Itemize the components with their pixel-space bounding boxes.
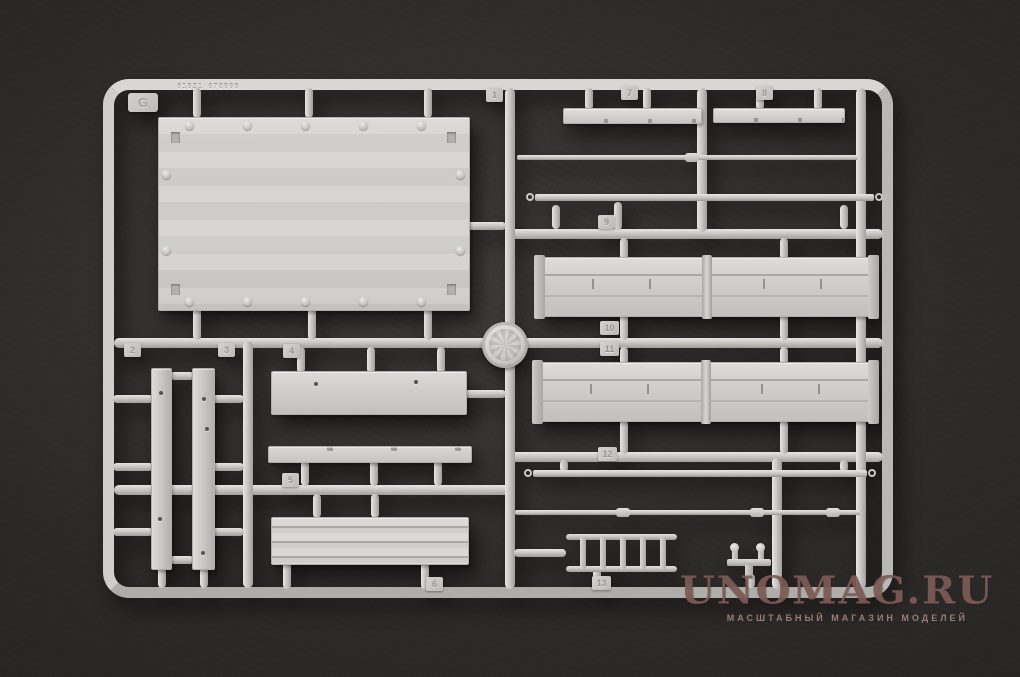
hole-detail [159, 391, 163, 395]
sprue-gate [193, 308, 201, 340]
hole-detail [202, 397, 206, 401]
sprue-gate [466, 222, 506, 230]
ladder-rung [600, 537, 606, 569]
watermark-title: UNOMAG.RU [680, 572, 970, 610]
sprue-gate [840, 205, 848, 229]
part-narrow-strip [268, 446, 472, 463]
corner-notch [447, 284, 456, 295]
rivet-detail [185, 297, 194, 306]
part-number-tag-1: 1 [486, 88, 503, 102]
rod-joint [826, 508, 840, 517]
ladder-rung [640, 537, 646, 569]
bracket-ball-head [730, 543, 739, 552]
part-number-tag-2: 2 [124, 343, 141, 357]
sprue-gate [434, 460, 442, 486]
part-step-strip-b [713, 108, 845, 123]
sprue-gate [305, 88, 313, 118]
rivet-detail [243, 121, 252, 130]
sprue-gate [212, 395, 244, 403]
rivet-detail [162, 246, 171, 255]
part-number-tag-3: 3 [218, 343, 235, 357]
part-step-strip-a [563, 108, 702, 124]
runner-vertical [243, 341, 253, 588]
part-bed-side-panel-a [536, 257, 877, 317]
watermark-subtitle: МАСШТАБНЫЙ МАГАЗИН МОДЕЛЕЙ [660, 613, 968, 623]
part-number-tag-9: 9 [598, 215, 615, 229]
hole-detail [201, 551, 205, 555]
sprue-gate [424, 308, 432, 340]
sprue-gate [814, 88, 822, 110]
sprue-gate [370, 460, 378, 486]
sprue-gate [212, 463, 244, 471]
rod-joint [685, 153, 699, 162]
eyelet-ring [526, 193, 534, 201]
sprue-gate [464, 390, 506, 398]
hole-detail [205, 427, 209, 431]
sprue-gate [552, 205, 560, 229]
ladder-rung [620, 537, 626, 569]
rod-joint [750, 508, 764, 517]
rivet-detail [185, 121, 194, 130]
sprue-gate [113, 463, 153, 471]
part-long-rod [517, 155, 858, 160]
part-number-tag-7: 7 [621, 86, 638, 100]
part-tie-bar-upper [535, 194, 874, 201]
sprue-gate [780, 314, 788, 340]
rivet-detail [359, 297, 368, 306]
rivet-detail [417, 121, 426, 130]
rivet-detail [301, 297, 310, 306]
sprue-gate [113, 395, 153, 403]
sprue-gate [313, 494, 321, 518]
eyelet-ring [875, 193, 883, 201]
runner-horizontal [509, 229, 883, 239]
panel-center-seam [702, 255, 712, 319]
sprue-gate [193, 88, 201, 118]
sprue-gate [424, 88, 432, 118]
part-tarp-roof-panel [158, 117, 470, 311]
sprue-gate [585, 88, 593, 110]
part-flat-board [271, 371, 467, 415]
part-number-tag-12: 12 [598, 447, 617, 461]
part-number-tag-6: 6 [426, 577, 443, 591]
sprue-gate [780, 420, 788, 454]
rivet-detail [162, 170, 171, 179]
corner-notch [447, 132, 456, 143]
rivet-detail [301, 121, 310, 130]
sprue-gate [371, 494, 379, 518]
mold-logo-medallion [482, 322, 528, 368]
eyelet-ring [868, 469, 876, 477]
part-number-tag-4: 4 [283, 344, 300, 358]
sprue-gate [614, 202, 622, 230]
part-chassis-rail-right [192, 368, 215, 570]
mold-code-text: 01021 070000 [177, 83, 240, 91]
sprue-gate [514, 549, 566, 557]
sprue-gate [212, 528, 244, 536]
part-tie-bar-lower [533, 470, 867, 477]
rod-joint [616, 508, 630, 517]
hole-detail [314, 382, 318, 386]
panel-center-seam [701, 360, 711, 424]
sprue-gate [367, 347, 375, 373]
part-number-tag-5: 5 [282, 473, 299, 487]
panel-end-bracket [868, 255, 879, 319]
hole-detail [158, 517, 162, 521]
panel-end-bracket [868, 360, 879, 424]
photo-background: 01021 070000 [0, 0, 1020, 677]
part-chassis-rail-left [151, 368, 172, 570]
rivet-detail [456, 246, 465, 255]
sprue-gate [170, 372, 194, 380]
part-number-tag-10: 10 [600, 321, 619, 335]
panel-end-bracket [534, 255, 545, 319]
sprue-gate [437, 347, 445, 373]
sprue-gate [620, 314, 628, 340]
bracket-ball-head [756, 543, 765, 552]
part-bed-side-panel-b [534, 362, 877, 422]
sprue-gate [283, 562, 291, 589]
sprue-letter-tag: G [128, 93, 158, 112]
rivet-detail [417, 297, 426, 306]
mold-logo-pattern [489, 329, 521, 361]
part-number-tag-11: 11 [600, 342, 619, 356]
sprue-gate [620, 420, 628, 454]
part-number-tag-13: 13 [592, 576, 611, 590]
part-ladder [566, 534, 677, 572]
ladder-rung [580, 537, 586, 569]
sprue-gate [113, 528, 153, 536]
part-number-tag-8: 8 [756, 86, 773, 100]
corner-notch [171, 284, 180, 295]
sprue-gate [643, 88, 651, 110]
rivet-detail [359, 121, 368, 130]
rivet-detail [456, 170, 465, 179]
panel-end-bracket [532, 360, 543, 424]
sprue-gate [308, 308, 316, 340]
sprue-gate [301, 460, 309, 486]
sprue-gate [170, 556, 194, 564]
runner-horizontal [114, 485, 510, 495]
ladder-rung [660, 537, 666, 569]
rivet-detail [243, 297, 252, 306]
hole-detail [414, 380, 418, 384]
part-ribbed-tailgate [271, 517, 469, 565]
eyelet-ring [524, 469, 532, 477]
part-segmented-rod [515, 510, 860, 515]
corner-notch [171, 132, 180, 143]
